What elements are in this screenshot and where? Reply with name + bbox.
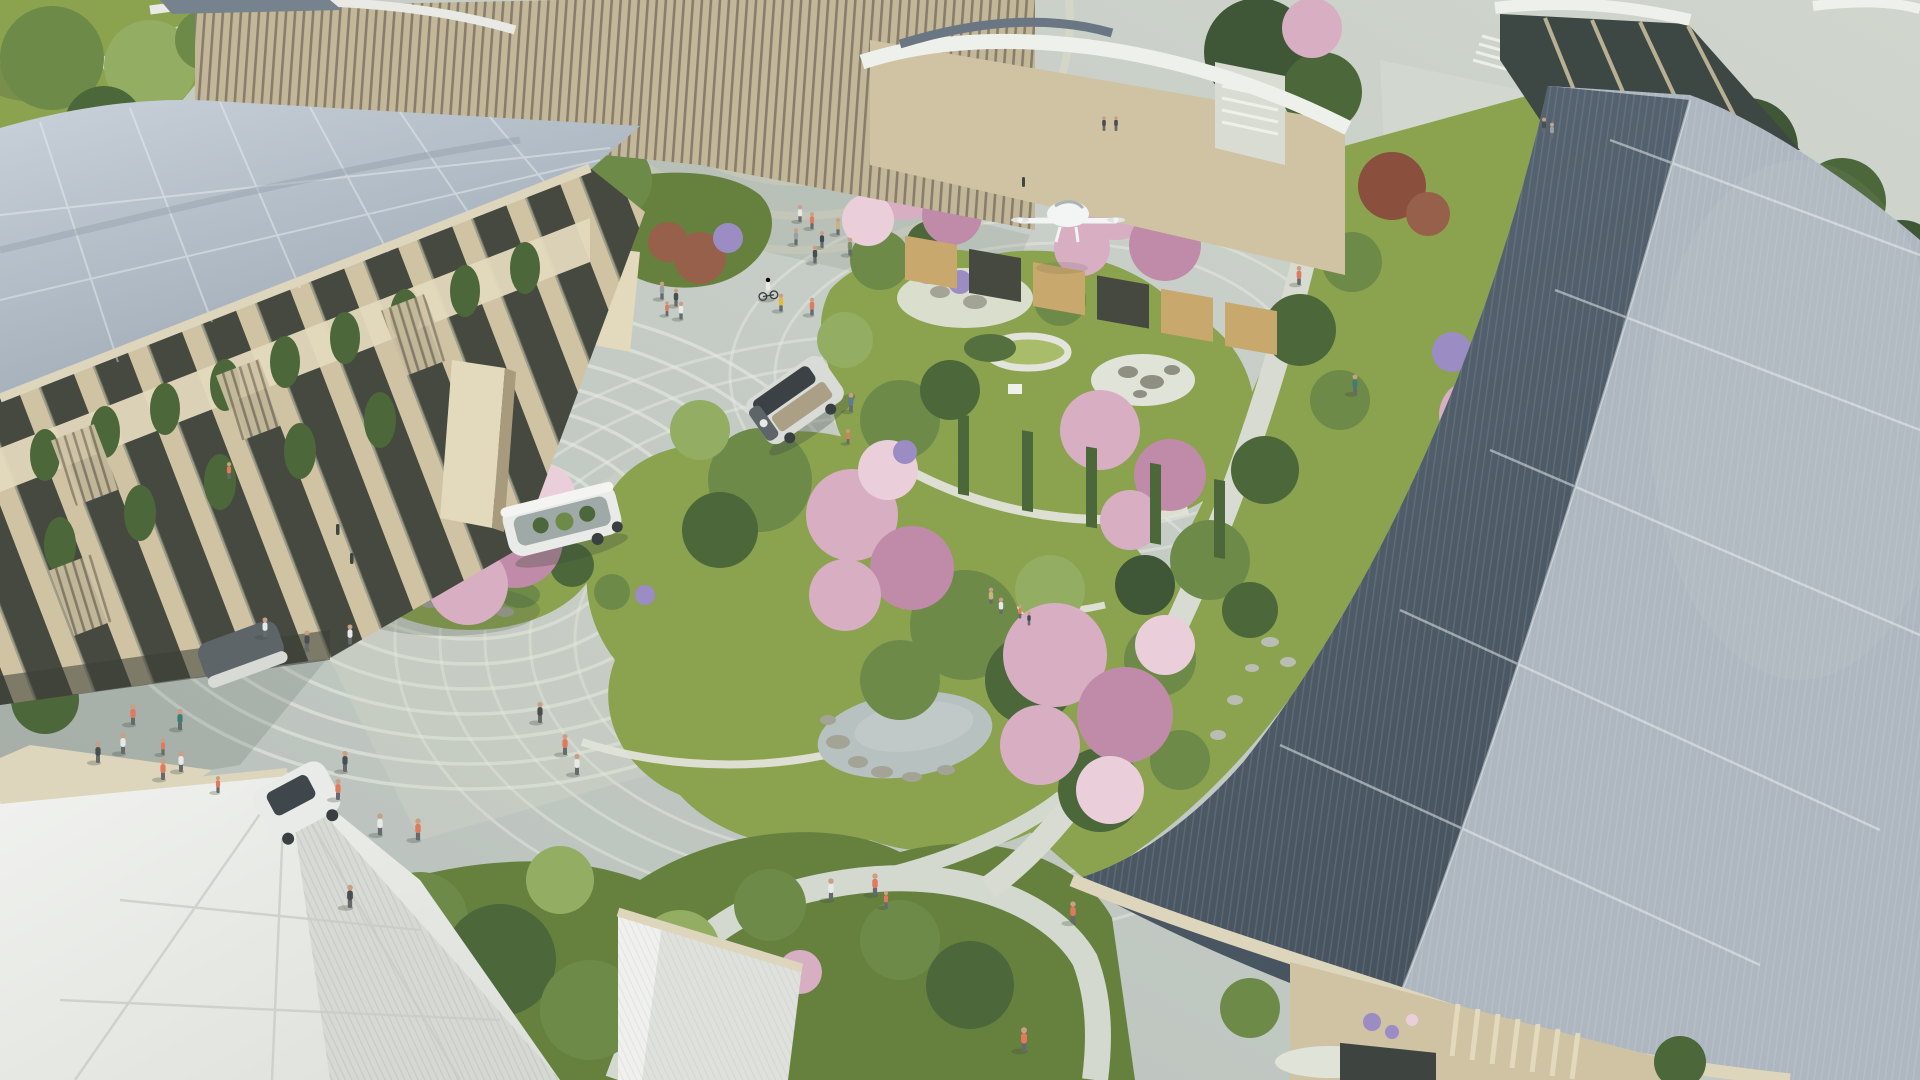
bonsai-pine	[964, 334, 1016, 362]
rendering-canvas: Aerial rendering — car-free smart neighb…	[0, 0, 1920, 1080]
person-in-window	[1102, 116, 1106, 131]
pedestrian	[1542, 118, 1546, 134]
drone-pod	[1047, 201, 1089, 227]
pedestrian-child	[1027, 612, 1030, 626]
person-on-balcony	[227, 462, 231, 479]
pedestrian	[1550, 123, 1554, 139]
garden-box	[1008, 384, 1022, 394]
pedestrian-child	[1018, 605, 1021, 619]
person-in-window	[1114, 116, 1118, 131]
aerial-rendering: Aerial rendering — car-free smart neighb…	[0, 0, 1920, 1080]
seated-elder	[989, 588, 993, 604]
seated-elder	[999, 598, 1003, 614]
